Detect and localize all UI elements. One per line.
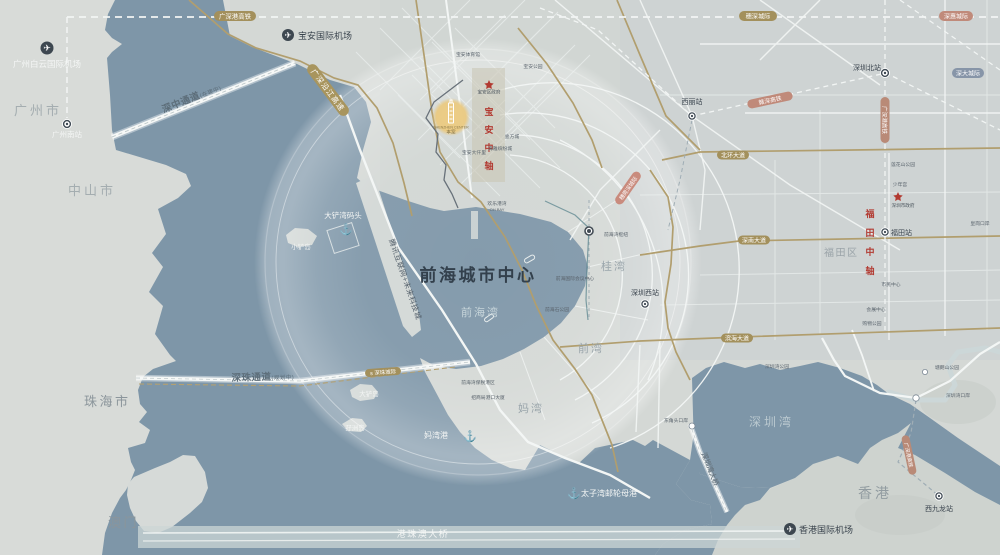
svg-text:东角头口岸: 东角头口岸: [664, 417, 688, 424]
svg-text:轴: 轴: [484, 160, 493, 171]
svg-text:福田区: 福田区: [824, 246, 859, 259]
svg-text:福田站: 福田站: [891, 228, 912, 237]
svg-text:西丽站: 西丽站: [682, 97, 703, 106]
svg-text:前海湾: 前海湾: [461, 305, 500, 319]
svg-text:深圳北站: 深圳北站: [853, 63, 881, 72]
svg-text:前湾: 前湾: [578, 341, 604, 355]
svg-text:宝安区政府: 宝安区政府: [478, 89, 501, 96]
svg-text:⚓: ⚓: [339, 223, 353, 236]
svg-text:香港: 香港: [858, 485, 892, 501]
svg-text:深南大道: 深南大道: [742, 236, 766, 244]
svg-text:珠海市: 珠海市: [84, 394, 131, 409]
svg-text:深圳市政府: 深圳市政府: [892, 202, 915, 209]
svg-text:福: 福: [864, 208, 874, 219]
svg-text:广深港高铁: 广深港高铁: [881, 106, 889, 134]
svg-text:宝安大仟里: 宝安大仟里: [462, 149, 486, 156]
svg-text:前海国际会议中心: 前海国际会议中心: [556, 275, 595, 282]
svg-text:北环大道: 北环大道: [721, 151, 745, 159]
svg-text:前海城市中心: 前海城市中心: [420, 265, 537, 285]
svg-text:前海石公园: 前海石公园: [545, 306, 569, 313]
svg-text:妈湾港: 妈湾港: [424, 430, 448, 440]
svg-text:中: 中: [865, 246, 874, 257]
svg-text:⚓: ⚓: [567, 487, 581, 500]
svg-text:欢乐港湾: 欢乐港湾: [487, 200, 506, 207]
svg-text:深圳西站: 深圳西站: [631, 288, 659, 297]
svg-text:购物公园: 购物公园: [862, 320, 881, 327]
svg-text:香港国际机场: 香港国际机场: [799, 524, 853, 535]
svg-text:大铲岛: 大铲岛: [359, 389, 379, 398]
svg-text:OH BAY: OH BAY: [490, 207, 505, 212]
svg-text:本案: 本案: [446, 129, 456, 136]
svg-text:壹方城: 壹方城: [505, 133, 520, 140]
svg-text:港珠澳大桥: 港珠澳大桥: [397, 528, 450, 539]
svg-text:⚓: ⚓: [463, 430, 477, 443]
svg-text:宝安体育馆: 宝安体育馆: [456, 51, 480, 58]
svg-text:宝安国际机场: 宝安国际机场: [298, 30, 352, 41]
svg-text:广深港高铁: 广深港高铁: [219, 12, 252, 21]
svg-text:莲花山公园: 莲花山公园: [891, 161, 915, 168]
svg-text:少年宫: 少年宫: [893, 181, 908, 188]
svg-text:招商局港口大厦: 招商局港口大厦: [471, 394, 505, 401]
svg-text:广州南站: 广州南站: [52, 129, 82, 139]
svg-text:✈: ✈: [284, 30, 292, 40]
svg-text:滨海大道: 滨海大道: [725, 334, 749, 342]
svg-text:前海湾枢纽: 前海湾枢纽: [604, 231, 628, 238]
svg-text:宝: 宝: [484, 106, 493, 117]
svg-text:中山市: 中山市: [68, 183, 116, 198]
svg-text:西九龙站: 西九龙站: [925, 504, 953, 513]
svg-text:田: 田: [865, 228, 874, 238]
svg-text:澳门: 澳门: [108, 515, 139, 530]
svg-text:大铲湾码头: 大铲湾码头: [324, 210, 362, 220]
svg-text:小铲岛: 小铲岛: [291, 242, 311, 251]
svg-text:深圳湾公园: 深圳湾公园: [765, 363, 789, 370]
svg-text:会展中心: 会展中心: [866, 306, 885, 313]
svg-text:安: 安: [484, 124, 493, 135]
svg-text:穗深城际: 穗深城际: [746, 13, 771, 21]
svg-text:广州白云国际机场: 广州白云国际机场: [13, 59, 81, 69]
svg-text:海雅缤纷城: 海雅缤纷城: [488, 145, 512, 152]
svg-text:前海湾保税港区: 前海湾保税港区: [461, 379, 495, 386]
svg-text:深圳湾口岸: 深圳湾口岸: [946, 392, 970, 399]
svg-text:✈: ✈: [786, 524, 794, 534]
svg-text:轴: 轴: [865, 265, 874, 276]
svg-text:宝安公园: 宝安公园: [523, 63, 542, 70]
svg-text:塘朗山公园: 塘朗山公园: [935, 364, 959, 371]
svg-text:皇岗口岸: 皇岗口岸: [970, 220, 989, 227]
svg-text:孖洲岛: 孖洲岛: [345, 423, 365, 432]
svg-text:太子湾邮轮母港: 太子湾邮轮母港: [581, 488, 637, 498]
svg-text:桂湾: 桂湾: [601, 259, 627, 273]
svg-text:✈: ✈: [43, 43, 51, 53]
svg-text:深大城际: 深大城际: [956, 70, 980, 78]
svg-text:妈湾: 妈湾: [518, 401, 544, 415]
svg-text:广州市: 广州市: [14, 103, 62, 118]
svg-text:深圳湾: 深圳湾: [749, 414, 794, 429]
svg-text:市民中心: 市民中心: [881, 281, 900, 288]
svg-text:深惠城际: 深惠城际: [944, 13, 968, 21]
